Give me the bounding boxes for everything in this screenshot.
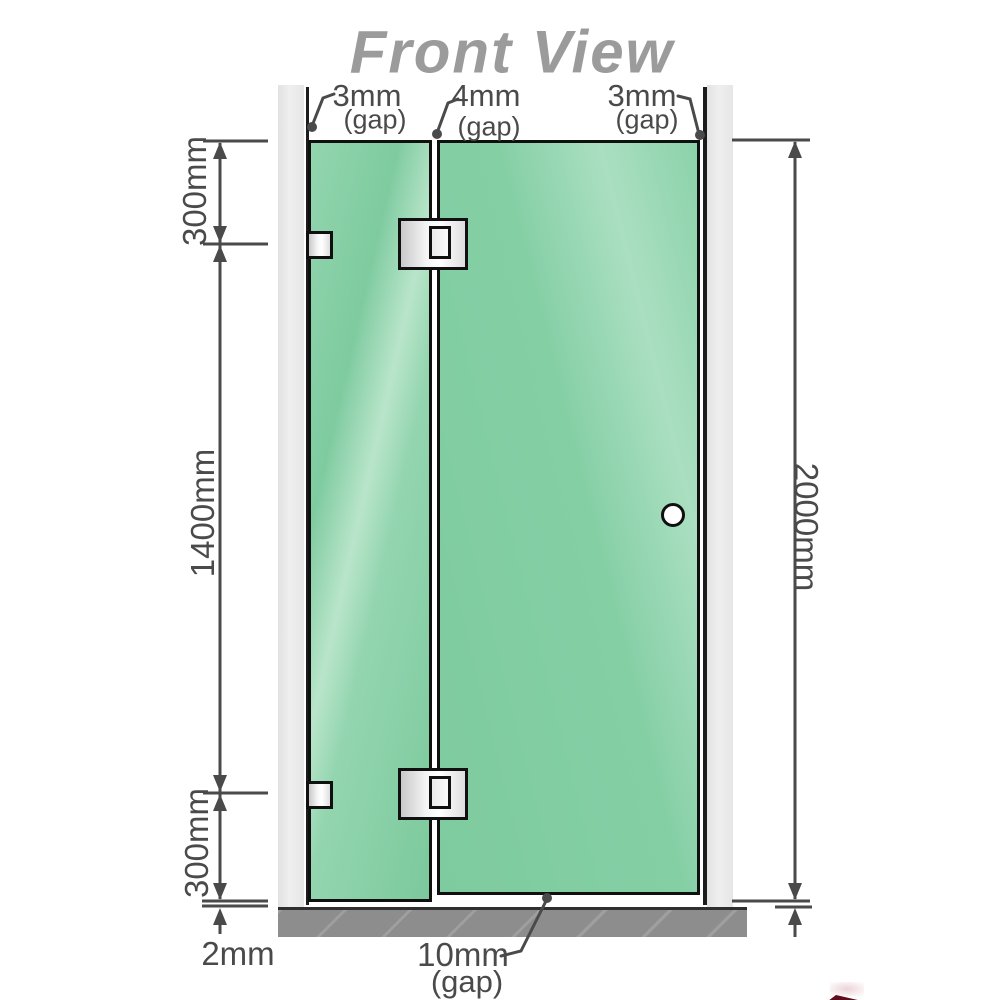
label-floor-gap: 2mm	[201, 935, 274, 973]
label-panel-top-height: 300mm	[176, 136, 214, 246]
label-total-height: 2000mm	[787, 463, 825, 591]
label-panel-bottom-height: 300mm	[178, 788, 216, 898]
label-gap-middle-unit: (gap)	[457, 112, 520, 143]
left-wall	[278, 85, 304, 907]
label-gap-left-unit: (gap)	[343, 105, 406, 136]
red-corner-graphic	[828, 995, 862, 1000]
label-gap-right-unit: (gap)	[615, 105, 678, 136]
right-wall	[707, 85, 733, 907]
label-door-floor-gap-unit: (gap)	[431, 964, 503, 1000]
wall-bracket-top	[306, 231, 333, 259]
door-hinge-top-clamp	[429, 226, 451, 259]
label-panel-middle-height: 1400mm	[184, 449, 222, 577]
door-knob	[661, 503, 685, 527]
diagram-title: Front View	[350, 18, 674, 87]
right-wall-edge-line	[703, 87, 707, 905]
wall-bracket-bottom	[306, 781, 333, 809]
floor-base	[278, 907, 747, 937]
label-gap-middle: 4mm	[452, 78, 521, 114]
red-corner-haze	[830, 982, 864, 996]
door-hinge-bottom-clamp	[429, 776, 451, 809]
shower-screen-front-view-diagram: Front View	[0, 0, 1000, 1000]
